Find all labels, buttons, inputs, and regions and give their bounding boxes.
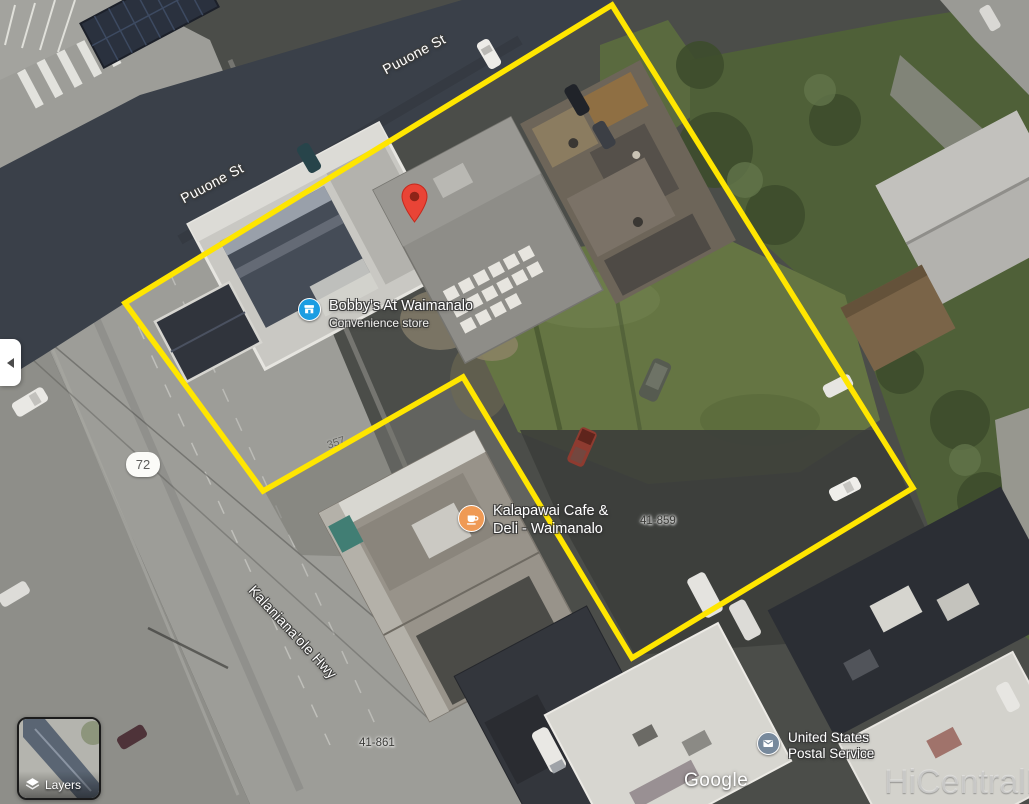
parcel-number-41-861: 41-861 bbox=[359, 737, 395, 749]
map-canvas[interactable]: 357 Puuone St Puuone St Kalaniana'ole Hw… bbox=[0, 0, 1029, 804]
poi-bobbys-at-waimanalo[interactable]: Bobby's At Waimanalo Convenience store bbox=[298, 298, 473, 332]
layers-bar: Layers bbox=[19, 771, 99, 798]
route-72-shield: 72 bbox=[126, 452, 160, 477]
property-location-pin[interactable] bbox=[401, 183, 428, 223]
hicentralmls-watermark: HiCentralMLS bbox=[884, 763, 1029, 802]
poi-title-line2: Postal Service bbox=[788, 746, 874, 762]
google-watermark: Google bbox=[684, 770, 748, 792]
property-boundary-highlight bbox=[125, 5, 913, 658]
poi-united-states-postal-service[interactable]: United States Postal Service bbox=[757, 732, 874, 762]
property-boundary-overlay bbox=[0, 0, 1029, 804]
collapse-panel-button[interactable] bbox=[0, 339, 21, 386]
parcel-number-41-859: 41-859 bbox=[640, 515, 676, 527]
layers-button[interactable]: Layers bbox=[17, 717, 101, 800]
poi-title-line1: Kalapawai Cafe & bbox=[493, 502, 608, 520]
chevron-left-icon bbox=[7, 358, 14, 368]
layers-icon bbox=[24, 776, 41, 793]
poi-title-line2: Deli - Waimanalo bbox=[493, 520, 608, 538]
poi-subtitle: Convenience store bbox=[329, 315, 473, 332]
convenience-store-icon bbox=[298, 298, 321, 321]
mail-icon bbox=[757, 732, 780, 755]
poi-title-line1: United States bbox=[788, 730, 874, 746]
layers-label: Layers bbox=[45, 778, 81, 792]
poi-kalapawai-cafe-deli[interactable]: Kalapawai Cafe & Deli - Waimanalo bbox=[458, 505, 608, 538]
poi-title: Bobby's At Waimanalo bbox=[329, 298, 473, 315]
cafe-icon bbox=[458, 505, 485, 532]
